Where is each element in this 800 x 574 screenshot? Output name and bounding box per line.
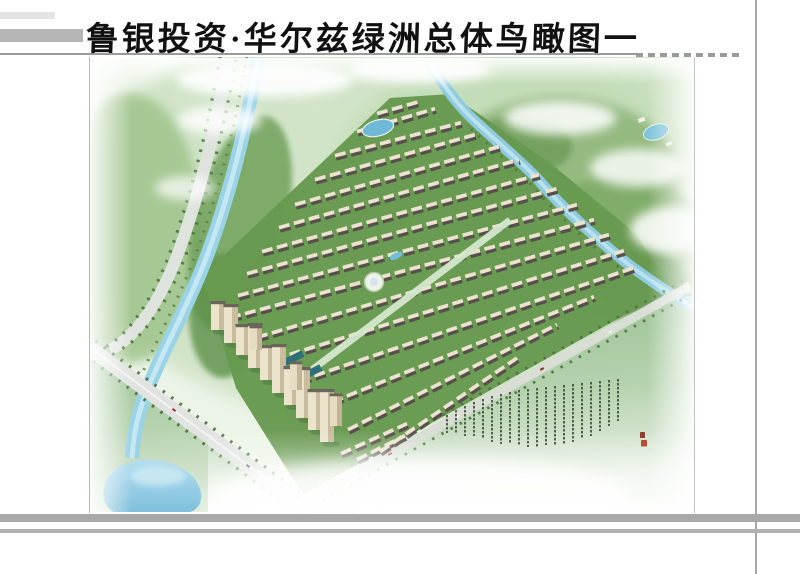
aerial-rendering [90,57,694,513]
top-left-accent-bar [0,29,83,42]
presentation-page: 鲁银投资·华尔兹绿洲总体鸟瞰图一 [0,0,800,574]
page-title: 鲁银投资·华尔兹绿洲总体鸟瞰图一 [85,12,686,52]
aerial-rendering-frame [89,57,695,513]
bottom-bar-thick [0,514,800,522]
right-border-line [755,0,757,574]
top-left-light-bar [0,12,55,19]
bottom-bar-thin [0,529,800,533]
title-underline [0,53,636,55]
